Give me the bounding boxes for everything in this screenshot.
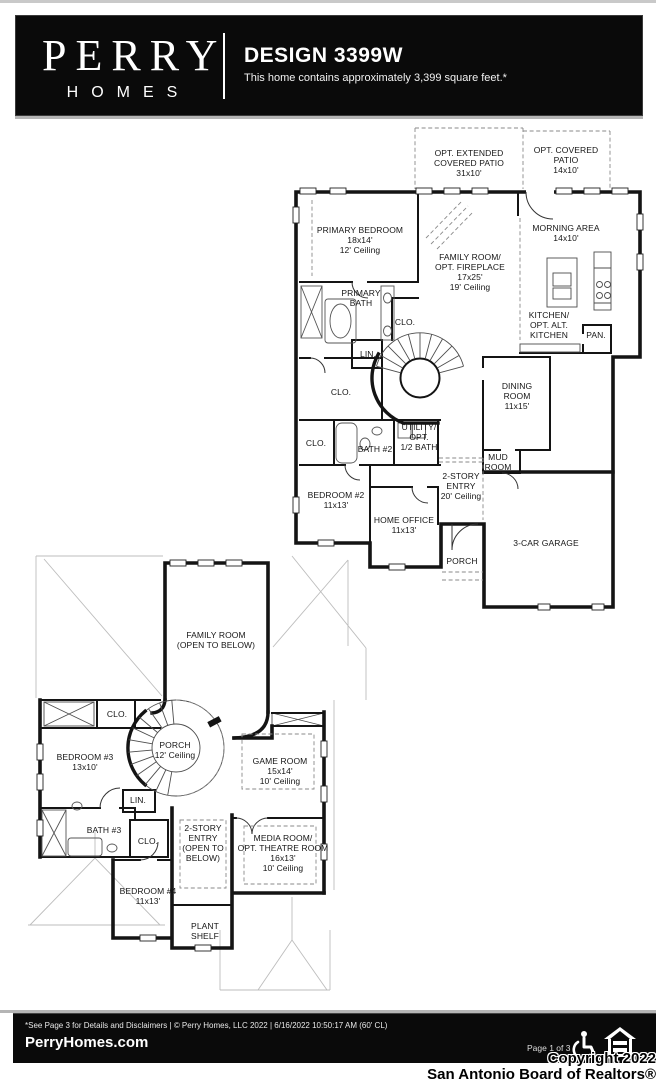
room-label-linen-1: LIN.	[360, 349, 376, 359]
room-label-bedroom-3: BEDROOM #3 13x10'	[57, 752, 114, 772]
room-label-garage: 3-CAR GARAGE	[513, 538, 578, 548]
room-label-bath-3: BATH #3	[87, 825, 122, 835]
room-label-two-story-entry-open: 2-STORY ENTRY (OPEN TO BELOW)	[182, 823, 224, 863]
room-label-utility: UTILITY/ OPT. 1/2 BATH	[400, 422, 437, 452]
room-label-closet-4: CLO.	[107, 709, 127, 719]
footer-website: PerryHomes.com	[25, 1034, 148, 1051]
room-label-bedroom-4: BEDROOM #4 11x13'	[120, 886, 177, 906]
room-label-closet-5: CLO.	[138, 836, 158, 846]
room-label-porch-upper: PORCH 12' Ceiling	[155, 740, 196, 760]
footer-disclaimer: *See Page 3 for Details and Disclaimers …	[25, 1021, 387, 1030]
room-label-media-room: MEDIA ROOM/ OPT. THEATRE ROOM 16x13' 10'…	[238, 833, 329, 873]
room-label-kitchen: KITCHEN/ OPT. ALT. KITCHEN	[529, 310, 569, 340]
room-label-bedroom-2: BEDROOM #2 11x13'	[308, 490, 365, 510]
room-label-family-room: FAMILY ROOM/ OPT. FIREPLACE 17x25' 19' C…	[435, 252, 505, 292]
curved-staircase	[372, 333, 464, 423]
room-label-opt-extended-covered-patio: OPT. EXTENDED COVERED PATIO 31x10'	[434, 148, 504, 178]
room-label-morning-area: MORNING AREA 14x10'	[532, 223, 599, 243]
room-label-closet-1: CLO.	[395, 317, 415, 327]
floor-plan-sheet: PERRY HOMES DESIGN 3399W This home conta…	[0, 0, 656, 1080]
room-label-plant-shelf: PLANT SHELF	[191, 921, 219, 941]
room-label-bath-2: BATH #2	[358, 444, 393, 454]
room-label-home-office: HOME OFFICE 11x13'	[374, 515, 434, 535]
copyright-line-2: San Antonio Board of Realtors®	[427, 1066, 656, 1080]
copyright-line-1: Copyright 2022	[548, 1050, 656, 1067]
room-label-primary-bath: PRIMARY BATH	[341, 288, 380, 308]
room-label-pantry: PAN.	[586, 330, 606, 340]
room-label-two-story-entry: 2-STORY ENTRY 20' Ceiling	[441, 471, 482, 501]
room-label-mud-room: MUD ROOM	[485, 452, 512, 472]
first-floor-plan	[293, 128, 643, 610]
room-label-closet-3: CLO.	[306, 438, 326, 448]
room-label-linen-2: LIN.	[130, 795, 146, 805]
room-label-dining-room: DINING ROOM 11x15'	[502, 381, 532, 411]
room-label-porch: PORCH	[446, 556, 477, 566]
room-label-closet-2: CLO.	[331, 387, 351, 397]
room-label-opt-covered-patio: OPT. COVERED PATIO 14x10'	[521, 145, 611, 175]
room-label-game-room: GAME ROOM 15x14' 10' Ceiling	[253, 756, 308, 786]
room-label-family-room-open: FAMILY ROOM (OPEN TO BELOW)	[177, 630, 255, 650]
room-label-primary-bedroom: PRIMARY BEDROOM 18x14' 12' Ceiling	[317, 225, 403, 255]
